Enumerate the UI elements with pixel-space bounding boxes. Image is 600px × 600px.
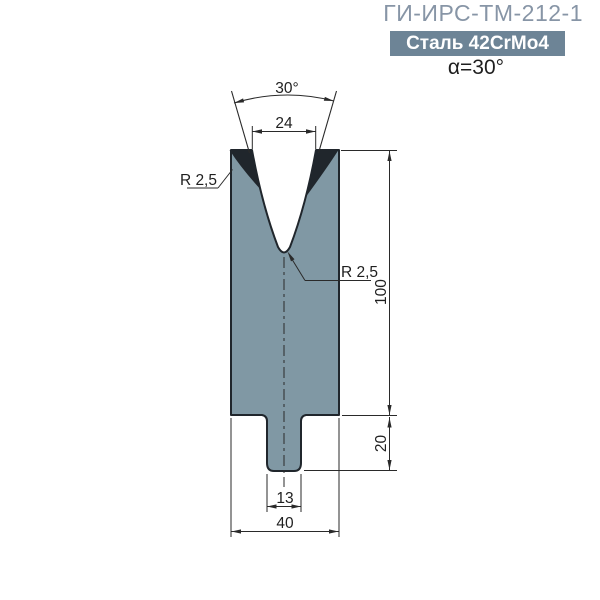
die-body	[231, 150, 339, 471]
body-width-value: 40	[276, 515, 294, 532]
technical-drawing: 30° 24 R 2,5 R 2,5	[0, 0, 600, 600]
dim-arrow-right	[306, 129, 316, 133]
tang-height-value: 20	[373, 435, 390, 453]
dim-arrow-right	[329, 529, 339, 533]
die-cross-section	[230, 150, 340, 487]
tang-width-value: 13	[276, 490, 293, 507]
dim-arrow-left	[267, 504, 277, 508]
angle-arrow-left	[234, 98, 244, 103]
angle-arrow-right	[324, 97, 334, 101]
label-shoulder-radius: R 2,5	[180, 170, 233, 190]
angle-value: 30°	[275, 80, 298, 97]
shoulder-radius-value: R 2,5	[180, 172, 217, 189]
opening-width-value: 24	[275, 115, 293, 132]
dim-body-height: 100	[341, 151, 397, 416]
body-height-value: 100	[373, 279, 390, 305]
dim-arrow-top	[387, 151, 391, 161]
die-drawing-page: ГИ-ИРС-ТМ-212-1 Сталь 42CrMo4 α=30° 30°	[0, 0, 600, 600]
dim-opening-width: 24	[252, 115, 315, 149]
dim-arrow-left	[253, 129, 263, 133]
dim-tang-height: 20	[304, 417, 397, 471]
tip-radius-value: R 2,5	[341, 264, 378, 281]
dim-arrow-bottom	[387, 460, 391, 470]
dim-arrow-left	[232, 529, 242, 533]
dim-arrow-top	[387, 418, 391, 428]
dim-arrow-bottom	[387, 405, 391, 415]
